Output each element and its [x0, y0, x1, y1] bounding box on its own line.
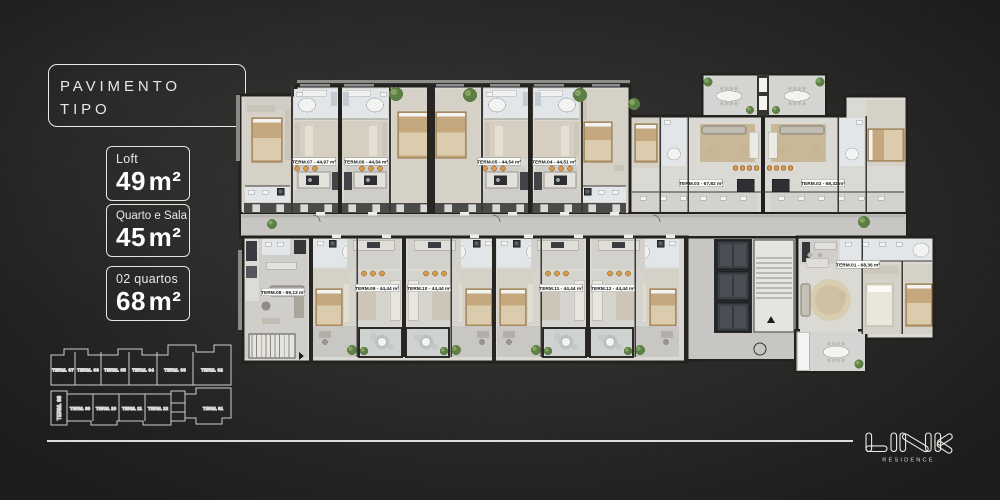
- svg-text:RESIDENCE: RESIDENCE: [882, 458, 934, 464]
